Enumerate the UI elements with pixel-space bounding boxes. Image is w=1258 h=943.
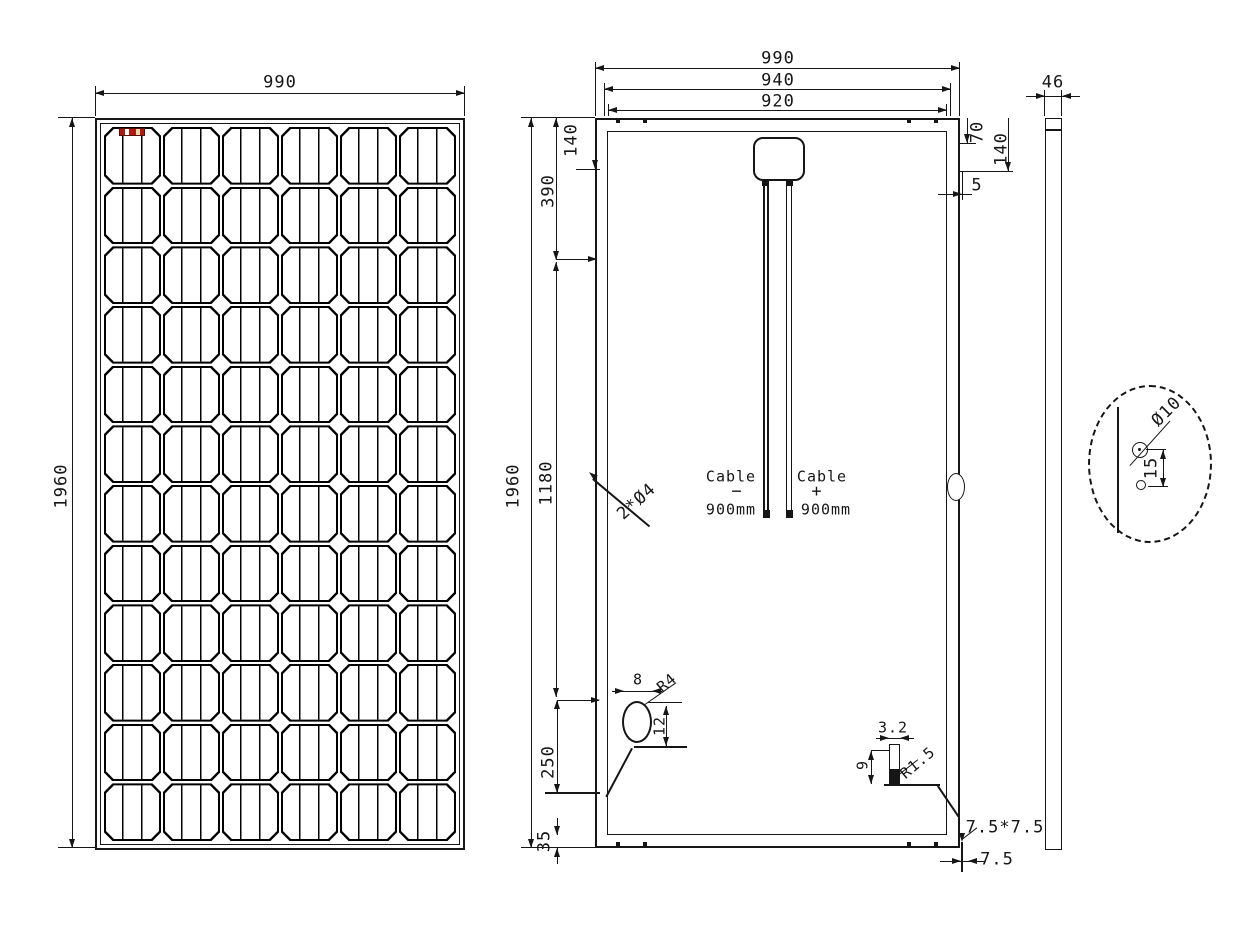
tick-line [545,792,600,794]
solar-cell [281,545,338,603]
solar-cell [340,604,397,662]
ext-line [946,104,947,116]
solar-cell [340,664,397,722]
dim-arrow [663,706,669,715]
tick-line [648,702,682,703]
tick-line [634,746,687,748]
cable-tip [786,510,793,518]
slot-width-label: 8 [633,673,643,688]
solar-cell [340,425,397,483]
cable-pos-length: 900mm [801,503,851,518]
ext-line [959,62,960,116]
back-140-left-label: 140 [564,123,581,157]
side-width-dim-line [1026,96,1080,97]
back-width-inner-label: 920 [761,94,795,111]
solar-cell [104,366,161,424]
solar-cell [163,724,220,782]
drain-slot-mark [934,119,938,123]
solar-cell [163,127,220,185]
cable-negative [763,186,769,512]
solar-cell [399,545,456,603]
ext-line [604,83,605,116]
dim-arrow [528,118,534,127]
ext-line [1061,90,1062,116]
drain-width-label: 7.5 [980,852,1014,869]
front-height-dim-line [72,118,73,848]
solar-cell [222,485,279,543]
solar-cell [281,724,338,782]
front-height-label: 1960 [54,464,71,509]
back-width-outer-label: 990 [761,51,795,68]
solar-cell [399,306,456,364]
cable-neg-length: 900mm [706,503,756,518]
dim-arrow [553,262,559,271]
back-390-label: 390 [541,174,558,208]
solar-cell [222,187,279,245]
solar-cell [163,366,220,424]
solar-cell [340,366,397,424]
front-ext-line-top [58,117,95,118]
back-5-label: 5 [971,178,982,195]
side-view-profile [1045,118,1062,850]
front-ext-line-bottom [58,847,95,848]
solar-cell [163,783,220,841]
solar-cell [281,306,338,364]
solar-cell [281,783,338,841]
solar-cell [340,306,397,364]
solar-cell [281,604,338,662]
solar-cell [340,127,397,185]
solar-cell [399,604,456,662]
solar-cell [163,604,220,662]
ext-line [608,104,609,116]
dim-arrow [595,65,604,71]
drain-slot-mark [907,119,911,123]
solar-cell [399,485,456,543]
junction-box [753,137,805,181]
solar-cell [222,604,279,662]
solar-cell [222,246,279,304]
solar-cell [281,246,338,304]
drain-slot-mark [643,842,647,846]
solar-cell [399,246,456,304]
dim-arrow [615,688,624,694]
solar-cell [340,545,397,603]
back-35-label: 35 [537,830,554,852]
solar-cell [340,187,397,245]
back-140-right-label: 140 [994,132,1011,166]
solar-cell [222,306,279,364]
drain-size-label: 7.5*7.5 [966,820,1045,837]
back-height-label: 1960 [506,464,523,509]
dim-arrow [952,858,961,864]
solar-cell [104,724,161,782]
technical-drawing-canvas: 990 1960 990 940 920 Cable − 900 [0,0,1258,943]
solar-cell [399,366,456,424]
dim-arrow [968,858,977,864]
detail-pitch-label: 15 [1144,457,1161,479]
dim-arrow [868,775,874,784]
slot-height-label: 12 [653,716,668,736]
solar-cell [281,485,338,543]
solar-cell [399,664,456,722]
drain-width-dim-line [940,861,985,862]
side-view-inner-line [1046,129,1061,131]
back-1180-label: 1180 [539,461,556,506]
solar-cell [104,187,161,245]
solar-cell [104,783,161,841]
cable-neg-sign: − [731,484,742,501]
ground-hole-oval [947,473,965,501]
solar-cell [340,246,397,304]
back-70-label: 70 [970,121,987,143]
detail-hole-center-dot [1138,448,1141,451]
dim-arrow [591,697,600,703]
solar-cell [399,187,456,245]
dim-arrow [554,700,560,709]
drain-slot-mark [643,119,647,123]
back-250-label: 250 [541,745,558,779]
cable-tip [763,510,770,518]
solar-cell [281,127,338,185]
drain-slot-mark [934,842,938,846]
ext-line [1044,90,1045,116]
nameplate-sticker [119,128,145,136]
front-ext-line-right [464,86,465,116]
solar-cell [222,664,279,722]
ext-line [950,83,951,116]
notch-width-label: 3.2 [878,721,908,736]
dim-arrow [95,90,104,96]
dim-arrow [553,118,559,127]
solar-cell [104,664,161,722]
front-width-label: 990 [263,75,297,92]
solar-cell [163,246,220,304]
side-width-label: 46 [1042,75,1064,92]
dim-arrow [604,86,613,92]
dim-arrow [554,848,560,857]
solar-cell [222,783,279,841]
drain-slot-mark [616,119,620,123]
solar-cell [163,306,220,364]
cable-pos-sign: + [811,484,822,501]
dim-arrow [953,191,962,197]
back-frame-inner-left [607,131,608,835]
drain-ext-line [961,842,963,872]
front-width-dim-line [95,93,465,94]
solar-cell [104,545,161,603]
front-ext-line-left [95,86,96,116]
mount-slot-hole [622,701,652,743]
solar-cell [104,425,161,483]
back-frame-inner-top [607,131,947,132]
tick-line [884,784,940,786]
solar-cell [163,425,220,483]
solar-cell [222,366,279,424]
dim-arrow [69,118,75,127]
drain-slot-mark [907,842,911,846]
dim-arrow [554,826,560,835]
solar-cell [399,783,456,841]
dim-arrow [663,737,669,746]
solar-cell [163,485,220,543]
solar-cell [104,485,161,543]
tick-line [576,169,600,170]
solar-cell [281,664,338,722]
dim-arrow [592,160,598,169]
detail-hole-small [1136,480,1146,490]
solar-cell [222,545,279,603]
solar-cell [281,366,338,424]
back-height-dim-line [531,118,532,848]
solar-cell [163,664,220,722]
solar-cell [340,485,397,543]
solar-cell [340,724,397,782]
dim-arrow [1062,93,1071,99]
solar-cell [340,783,397,841]
dim-arrow [553,688,559,697]
notch-height-label: 9 [856,760,871,770]
cable-positive [786,186,792,512]
dim-arrow [608,107,617,113]
dim-arrow [868,751,874,760]
solar-cell [399,724,456,782]
solar-cell [163,187,220,245]
solar-cell [399,425,456,483]
back-frame-inner-bottom [607,834,947,835]
solar-cell [281,425,338,483]
tick-line [960,171,1013,172]
solar-cell [281,187,338,245]
solar-cell [222,425,279,483]
solar-cell [163,545,220,603]
drain-slot-mark [616,842,620,846]
back-5-ext-line [962,172,963,200]
solar-cell [104,306,161,364]
dim-arrow [1160,478,1166,487]
solar-cell [104,246,161,304]
solar-cell-grid [104,127,456,841]
ext-line [595,62,596,116]
dim-arrow [588,256,597,262]
solar-cell [104,604,161,662]
solar-cell [399,127,456,185]
solar-cell [222,127,279,185]
solar-cell [222,724,279,782]
back-width-mount-label: 940 [761,73,795,90]
detail-frame-edge-line [1117,407,1119,533]
